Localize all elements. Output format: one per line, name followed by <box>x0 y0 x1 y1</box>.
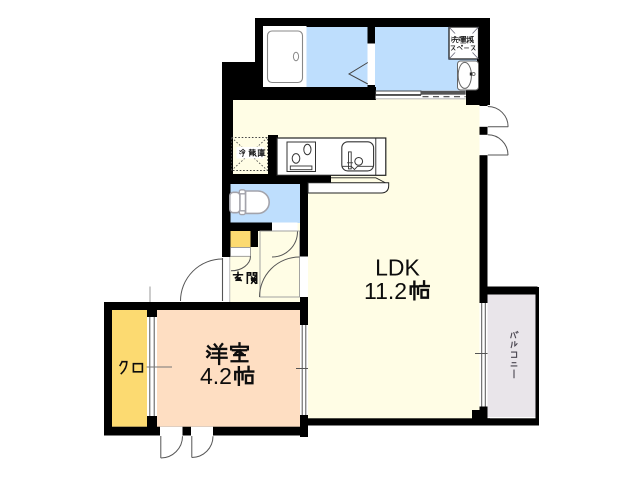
svg-text:11.2: 11.2 <box>364 278 407 304</box>
svg-text:4.2: 4.2 <box>200 363 232 389</box>
svg-text:LDK: LDK <box>375 255 420 281</box>
